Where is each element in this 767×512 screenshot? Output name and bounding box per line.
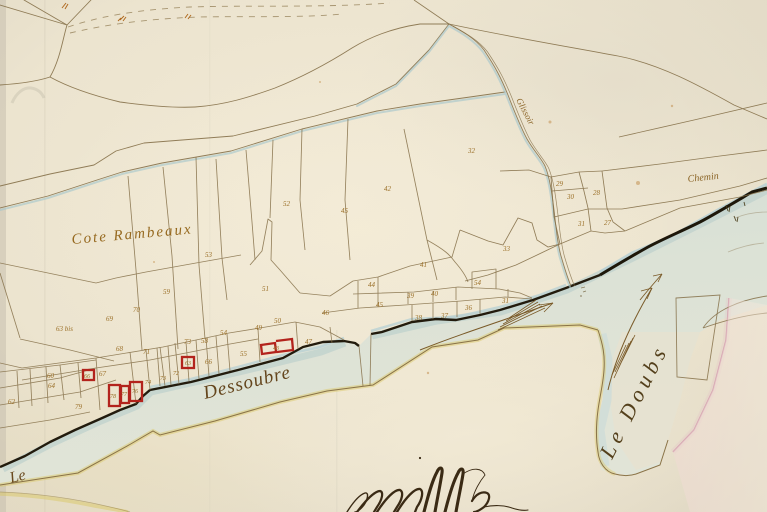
svg-text:51: 51	[262, 285, 269, 293]
svg-text:31: 31	[501, 297, 509, 305]
svg-text:77: 77	[121, 392, 128, 398]
svg-text:39: 39	[406, 292, 415, 300]
svg-text:70: 70	[133, 306, 141, 314]
svg-text:29: 29	[556, 180, 564, 188]
svg-text:76: 76	[132, 389, 138, 395]
svg-text:71: 71	[143, 348, 150, 356]
svg-text:64: 64	[48, 382, 56, 390]
svg-text:59: 59	[163, 288, 171, 296]
svg-text:27: 27	[604, 219, 612, 227]
svg-text:45: 45	[341, 207, 349, 215]
svg-text:73: 73	[184, 338, 192, 346]
svg-text:41: 41	[420, 261, 427, 269]
svg-text:78: 78	[110, 394, 116, 400]
svg-text:63 bis: 63 bis	[56, 325, 73, 333]
svg-text:67: 67	[99, 370, 107, 378]
svg-text:31: 31	[577, 220, 585, 228]
svg-text:37: 37	[440, 312, 449, 320]
svg-text:60: 60	[47, 372, 55, 380]
svg-text:54: 54	[220, 329, 228, 337]
svg-text:74: 74	[145, 379, 151, 386]
svg-text:40: 40	[431, 290, 439, 298]
svg-text:72: 72	[173, 371, 179, 377]
svg-text:62: 62	[8, 398, 16, 406]
svg-text:38: 38	[414, 314, 423, 322]
svg-text:66: 66	[205, 358, 213, 366]
svg-text:43: 43	[273, 345, 279, 352]
svg-text:33: 33	[502, 245, 511, 253]
svg-text:55: 55	[240, 350, 248, 358]
svg-text:42: 42	[384, 185, 392, 193]
svg-text:49: 49	[255, 324, 263, 332]
svg-text:45: 45	[376, 301, 384, 309]
svg-text:46: 46	[322, 309, 330, 317]
svg-text:36: 36	[464, 304, 473, 312]
svg-text:69: 69	[106, 315, 114, 323]
svg-text:28: 28	[593, 189, 601, 197]
svg-text:63: 63	[185, 361, 191, 367]
svg-text:32: 32	[467, 147, 476, 155]
svg-text:52: 52	[283, 200, 291, 208]
svg-text:73: 73	[160, 376, 166, 382]
svg-text:66: 66	[84, 374, 90, 380]
svg-text:58: 58	[201, 337, 209, 345]
svg-text:47: 47	[305, 338, 313, 346]
svg-text:53: 53	[205, 251, 213, 259]
svg-text:54: 54	[474, 279, 482, 287]
svg-text:79: 79	[75, 403, 83, 411]
svg-text:50: 50	[274, 317, 282, 325]
svg-text:68: 68	[116, 345, 124, 353]
svg-text:44: 44	[368, 281, 376, 289]
svg-text:30: 30	[566, 193, 575, 201]
